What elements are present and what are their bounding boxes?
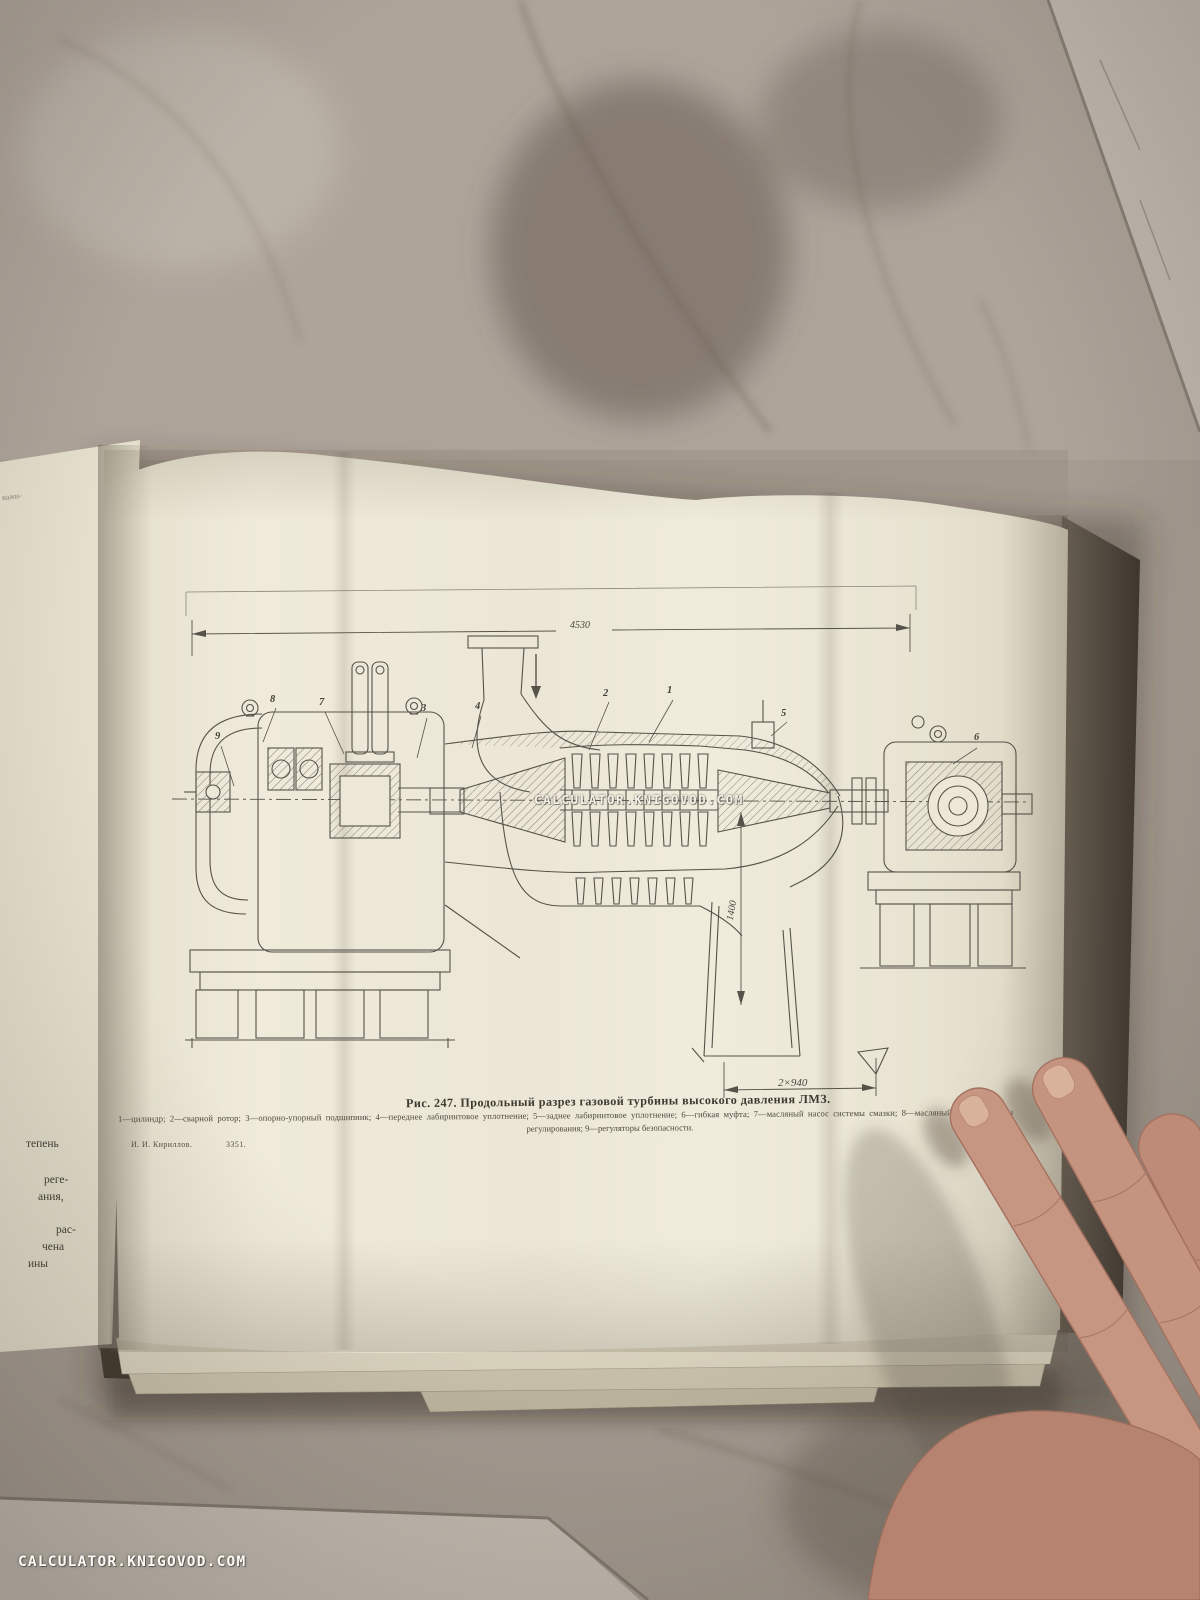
hand-holding-page: [0, 0, 1200, 1600]
photo-of-open-book: важи- тепень реге- ания, рас- чена ины Р…: [0, 0, 1200, 1600]
